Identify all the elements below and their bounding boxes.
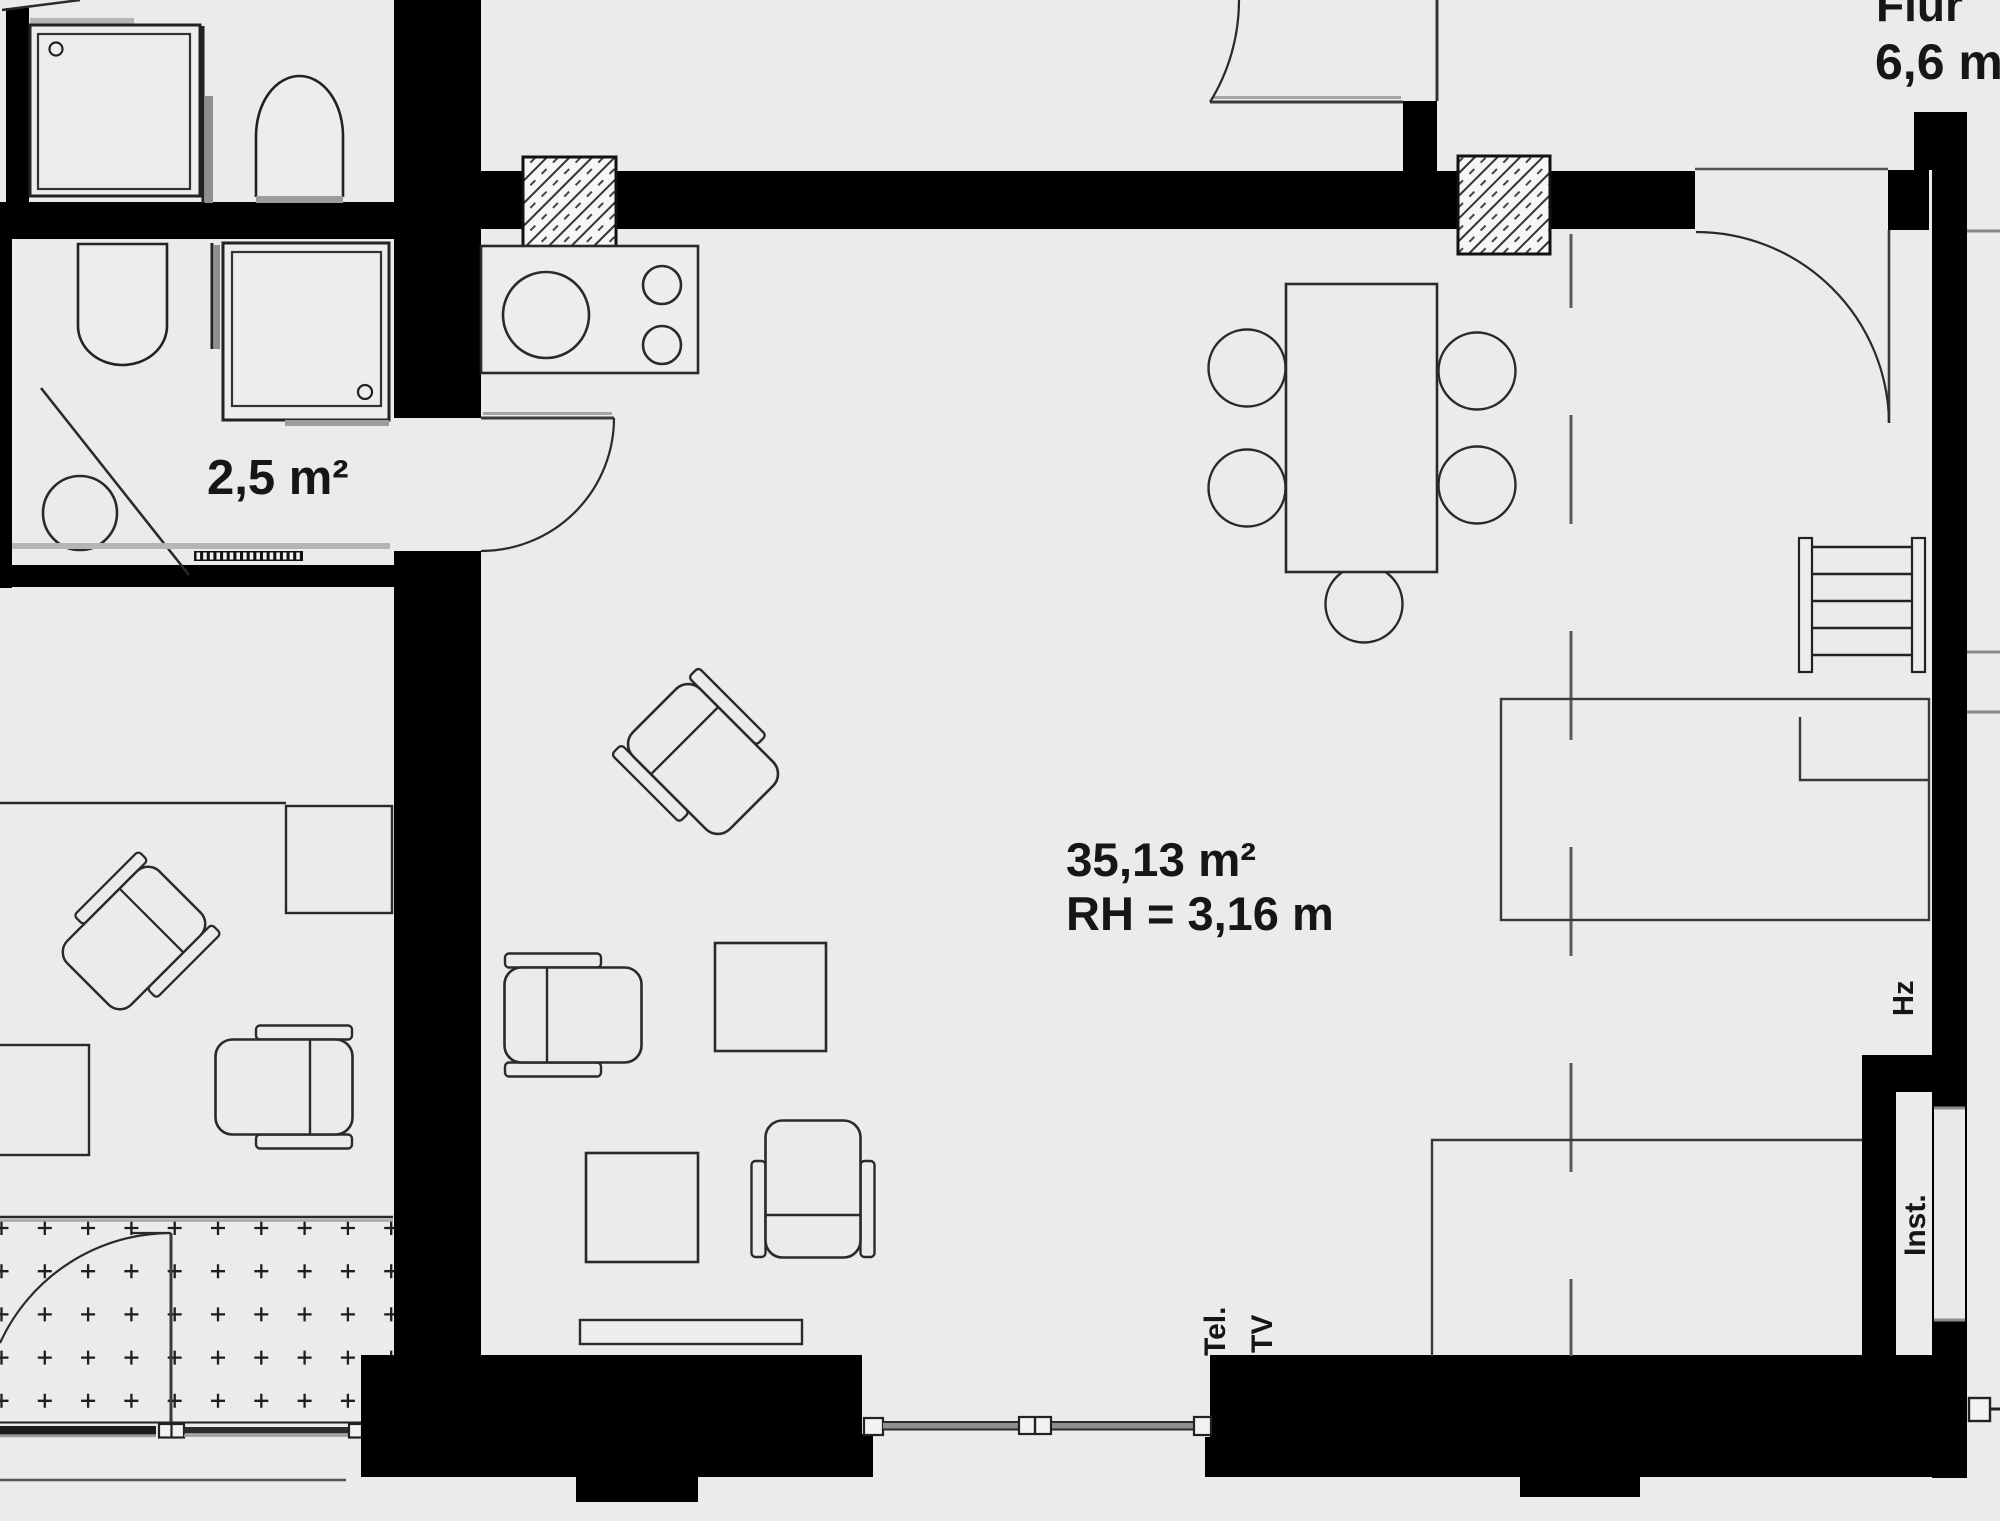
svg-text:Tel.: Tel.	[1199, 1307, 1232, 1356]
svg-text:Flur: Flur	[1876, 0, 1963, 31]
svg-text:Inst.: Inst.	[1899, 1194, 1932, 1256]
svg-text:35,13 m²: 35,13 m²	[1066, 834, 1256, 887]
svg-text:2,5 m²: 2,5 m²	[207, 451, 349, 505]
svg-text:RH = 3,16 m: RH = 3,16 m	[1066, 887, 1334, 940]
svg-text:6,6 m²: 6,6 m²	[1875, 34, 2000, 90]
svg-text:Hz: Hz	[1888, 981, 1920, 1016]
svg-text:TV: TV	[1246, 1315, 1279, 1353]
